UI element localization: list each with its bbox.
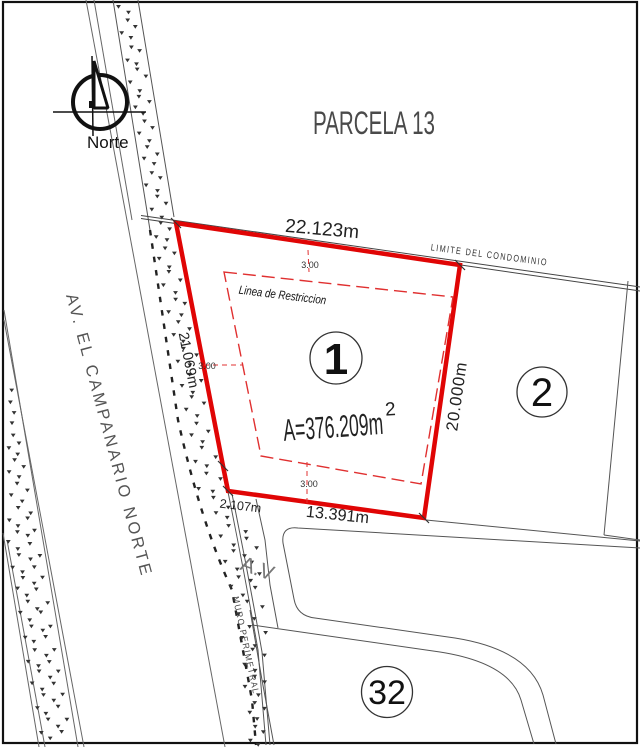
svg-text:PARCELA 13: PARCELA 13: [313, 105, 435, 141]
svg-text:2: 2: [384, 399, 396, 421]
svg-text:Norte: Norte: [87, 133, 129, 152]
svg-text:32: 32: [368, 674, 406, 712]
svg-text:3.00: 3.00: [301, 260, 319, 270]
svg-text:A=376.209m: A=376.209m: [282, 406, 384, 448]
svg-text:3.00: 3.00: [198, 361, 216, 371]
svg-text:3.00: 3.00: [300, 479, 318, 489]
svg-text:1: 1: [324, 335, 348, 384]
svg-text:2: 2: [531, 371, 553, 415]
